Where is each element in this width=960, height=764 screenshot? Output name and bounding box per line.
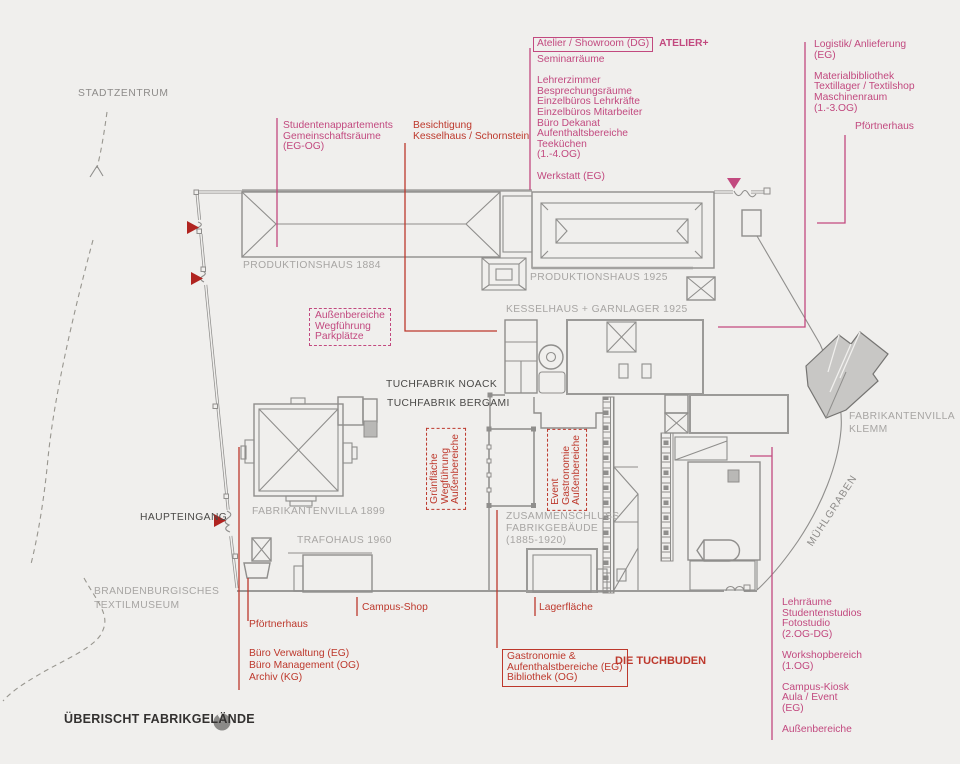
label-die-tuchbuden: DIE TUCHBUDEN [615,656,706,667]
building-zwischenbau [482,258,526,290]
vbox-line: Außenbereiche [572,435,583,505]
building-right-complex [675,437,760,590]
page-title: ÜBERISCHT FABRIKGELÄNDE [64,714,255,725]
label-aussenbereiche-gastronomie-event: Außenbereiche Gastronomie Event [547,429,587,511]
label-kesselhaus-garnlager: KESSELHAUS + GARNLAGER 1925 [506,305,688,316]
building-tuchfabrik-annex [338,397,377,437]
vbox-line: Außenbereiche [451,434,462,504]
label-verwaltung: Büro Verwaltung (EG) Büro Management (OG… [249,648,359,685]
building-pfoertnerhaus-nord [742,210,761,236]
label-tuchfabrik-noack: TUCHFABRIK NOACK [386,380,497,391]
building-produktionshaus-1925 [532,192,715,300]
building-produktionshaus-1884 [242,191,532,258]
building-fabrikantenvilla-klemm [806,332,888,418]
site-plan-page: STADTZENTRUM Studentenappartements Gemei… [0,0,960,764]
label-textilmuseum: BRANDENBURGISCHES TEXTILMUSEUM [94,585,219,612]
building-pfoertnerhaus-sued [244,538,271,578]
label-lagerflaeche: Lagerfläche [539,603,593,614]
label-haupteingang: HAUPTEINGANG [140,513,227,524]
label-atelier-header: Atelier / Showroom (DG) ATELIER+ [533,37,708,52]
building-trafohaus [288,553,372,592]
gate-marker-north-icon [727,178,741,189]
label-studentenappartements: Studentenappartements Gemeinschaftsräume… [283,121,393,153]
label-logistik: Logistik/ Anlieferung (EG) Materialbibli… [814,40,915,114]
label-zusammenschluss: ZUSAMMENSCHLUSS FABRIKGEBÄUDE (1885-1920… [506,511,620,547]
label-pfoertnerhaus-nord: Pförtnerhaus [855,122,914,133]
label-fabrikantenvilla-klemm: FABRIKANTENVILLA KLEMM [849,410,955,436]
label-aussenbereiche-parkplaetze: Außenbereiche Wegführung Parkplätze [309,308,391,346]
building-fabrikantenvilla-1899 [241,398,357,506]
label-fabrikantenvilla-1899: FABRIKANTENVILLA 1899 [252,507,385,518]
vbox-line: Grünfläche [430,434,441,504]
building-east-wing [665,395,788,433]
label-produktionshaus-1884: PRODUKTIONSHAUS 1884 [243,261,381,272]
label-aussenbereiche-gruenflaeche: Außenbereiche Wegführung Grünfläche [426,428,466,510]
label-trafohaus: TRAFOHAUS 1960 [297,536,392,547]
label-besichtigung: Besichtigung Kesselhaus / Schornstein [413,121,529,142]
label-atelier-program: Seminarräume Lehrerzimmer Besprechungsrä… [537,55,642,182]
label-stadtzentrum: STADTZENTRUM [78,89,169,100]
label-ost-program: Lehrräume Studentenstudios Fotostudio (2… [782,598,862,736]
label-tuchbuden-program: Gastronomie & Aufenthalstbereiche (EG) B… [502,649,628,687]
atelier-showroom-box: Atelier / Showroom (DG) [533,37,653,52]
building-kesselhaus-garnlager [505,320,703,394]
label-campus-shop: Campus-Shop [362,603,428,614]
label-pfoertnerhaus-sued: Pförtnerhaus [249,620,308,631]
vbox-line: Event [551,435,562,505]
dashed-route-lines [3,112,107,701]
label-produktionshaus-1925: PRODUKTIONSHAUS 1925 [530,273,668,284]
label-tuchfabrik-bergami: TUCHFABRIK BERGAMI [387,399,510,410]
atelier-brand: ATELIER+ [659,39,708,50]
